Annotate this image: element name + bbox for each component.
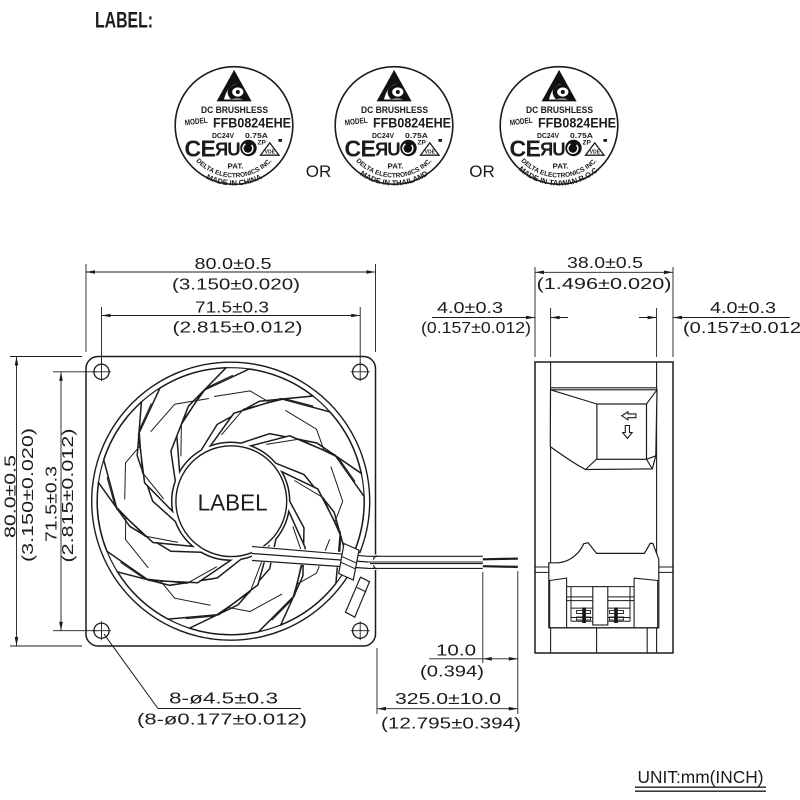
svg-text:(0.157±0.012: (0.157±0.012 [683,320,800,337]
svg-text:71.5±0.3: 71.5±0.3 [195,300,269,317]
svg-text:ZP: ZP [418,140,427,147]
svg-text:FFB0824EHE: FFB0824EHE [373,115,451,131]
svg-text:71.5±0.3: 71.5±0.3 [44,466,61,542]
svg-text:FFB0824EHE: FFB0824EHE [213,115,291,131]
svg-text:4.0±0.3: 4.0±0.3 [437,300,503,317]
svg-text:U: U [552,139,565,160]
svg-text:4.0±0.3: 4.0±0.3 [710,300,776,317]
svg-text:ZP: ZP [258,140,267,147]
svg-text:C: C [510,136,527,162]
svg-text:ZP: ZP [583,140,592,147]
svg-text:38.0±0.5: 38.0±0.5 [567,255,643,272]
svg-text:(12.795±0.394): (12.795±0.394) [381,716,521,733]
svg-text:OR: OR [306,162,332,181]
svg-text:U: U [387,139,400,160]
svg-text:80.0±0.5: 80.0±0.5 [195,256,272,273]
svg-text:FFB0824EHE: FFB0824EHE [538,115,616,131]
svg-text:OR: OR [469,162,495,181]
svg-text:E: E [526,136,541,162]
svg-text:(2.815±0.012): (2.815±0.012) [60,429,77,563]
svg-text:E: E [201,136,216,162]
svg-text:325.0±10.0: 325.0±10.0 [395,691,501,708]
svg-text:C: C [185,136,202,162]
svg-text:U: U [227,139,240,160]
svg-text:VDE: VDE [590,150,601,156]
svg-text:E: E [361,136,376,162]
svg-text:PAT.: PAT. [388,162,404,171]
svg-text:PAT.: PAT. [553,162,569,171]
svg-text:(2.815±0.012): (2.815±0.012) [173,320,303,337]
svg-text:(3.150±0.020): (3.150±0.020) [172,277,300,294]
svg-text:10.0: 10.0 [436,643,476,660]
svg-text:VDE: VDE [265,150,276,156]
svg-text:80.0±0.5: 80.0±0.5 [3,455,20,538]
svg-text:8-ø4.5±0.3: 8-ø4.5±0.3 [169,691,278,708]
svg-text:(3.150±0.020): (3.150±0.020) [20,428,37,562]
svg-text:(0.394): (0.394) [420,664,484,681]
svg-text:LABEL: LABEL [198,490,268,516]
svg-text:(1.496±0.020): (1.496±0.020) [537,276,672,293]
svg-text:(8-ø0.177±0.012): (8-ø0.177±0.012) [137,712,307,729]
svg-text:LABEL:: LABEL: [95,8,153,33]
svg-text:UNIT:mm(INCH): UNIT:mm(INCH) [638,767,764,787]
svg-text:(0.157±0.012): (0.157±0.012) [421,320,531,337]
svg-text:PAT.: PAT. [228,162,244,171]
svg-text:C: C [345,136,362,162]
svg-text:VDE: VDE [425,150,436,156]
